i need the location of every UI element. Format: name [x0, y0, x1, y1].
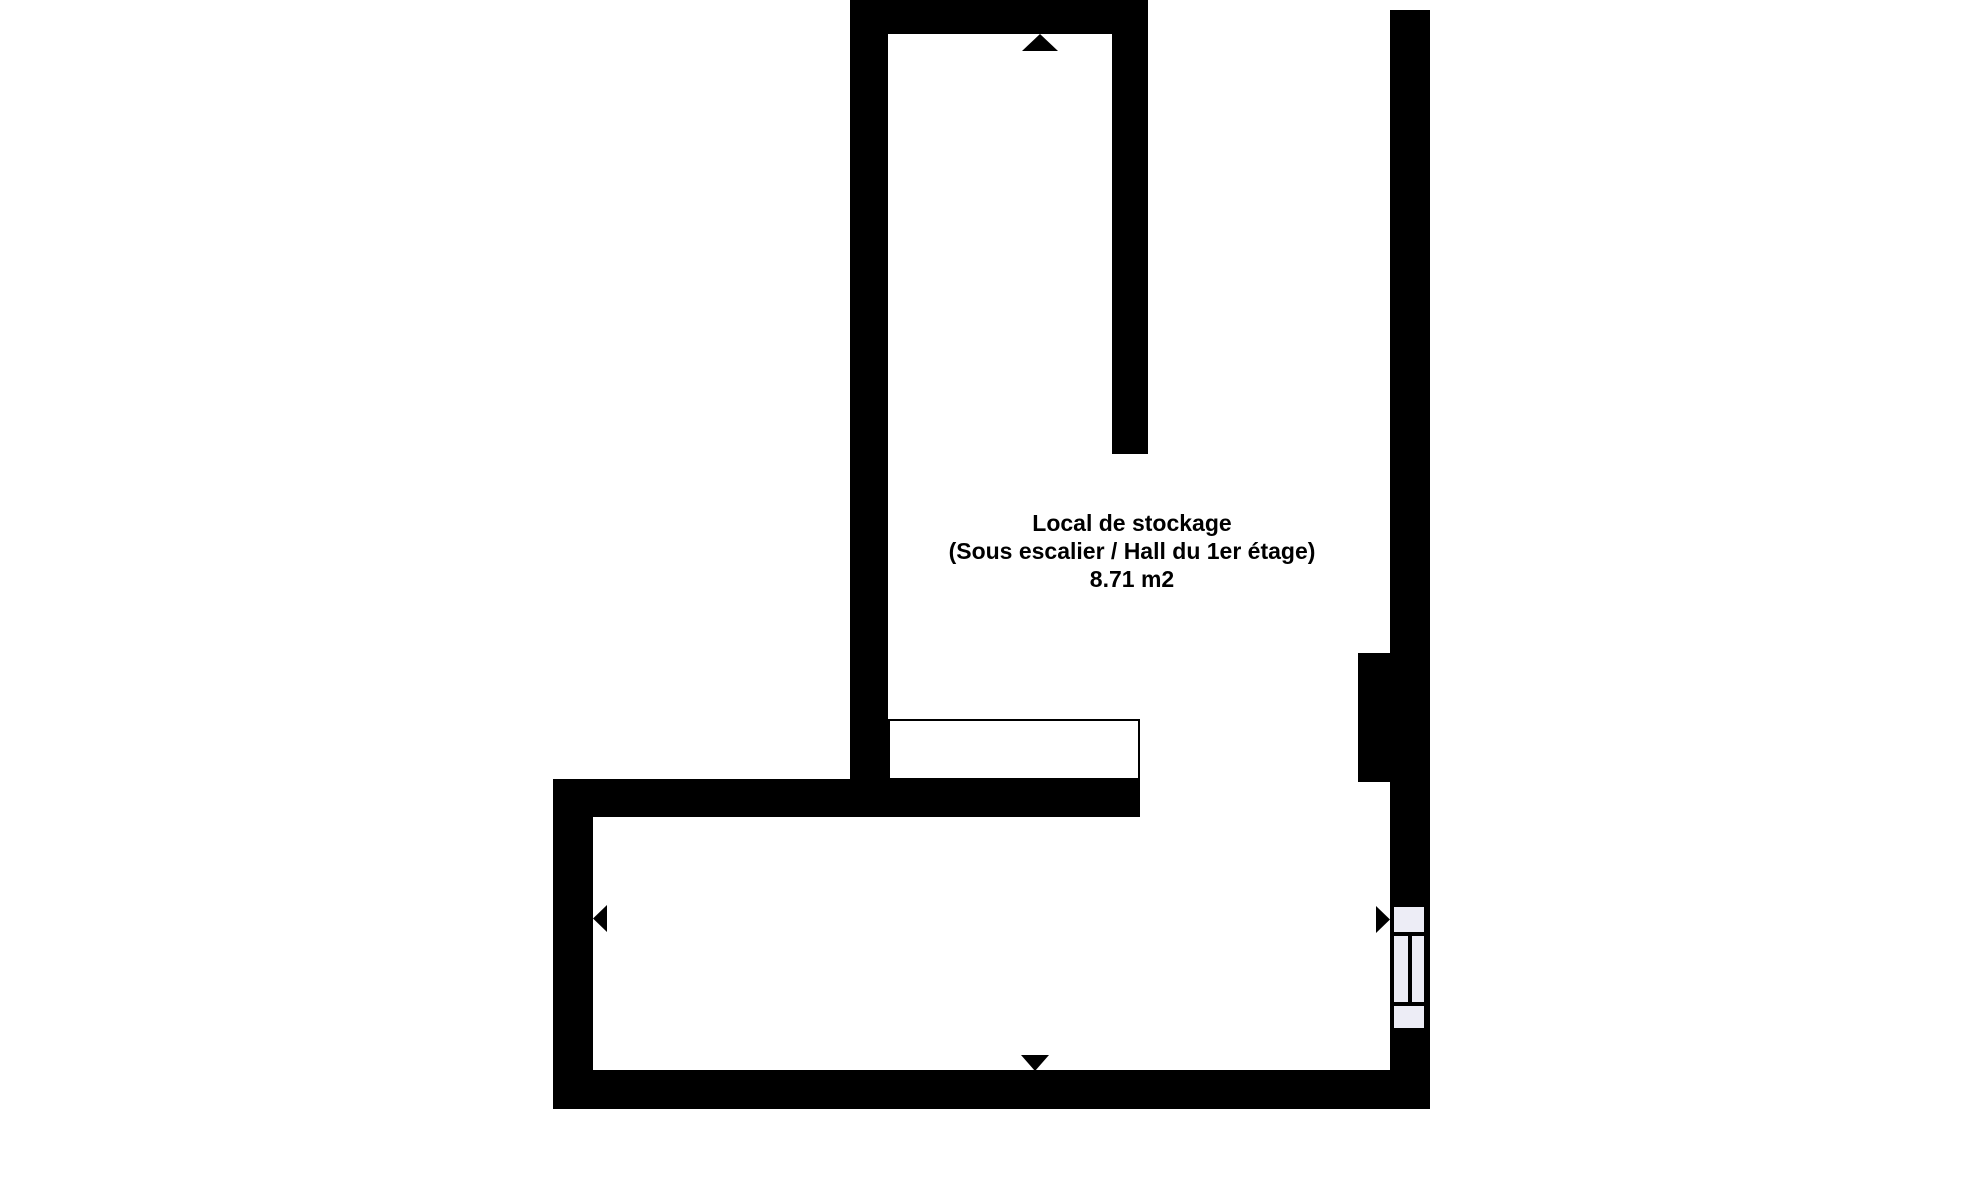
radiator-segment — [1394, 907, 1424, 932]
room-label: Local de stockage (Sous escalier / Hall … — [882, 509, 1382, 593]
wall-lower-room-left — [553, 779, 593, 1109]
wall-lower-room-bottom — [553, 1070, 1430, 1109]
floorplan-canvas: Local de stockage (Sous escalier / Hall … — [0, 0, 1984, 1200]
room-name: Local de stockage — [882, 509, 1382, 537]
radiator-segment — [1412, 936, 1424, 1002]
door-marker-down-icon — [1021, 1055, 1049, 1071]
door-marker-up-icon — [1022, 34, 1058, 51]
wall-upper-corridor-top — [850, 0, 1148, 34]
wall-lower-room-top — [553, 779, 1140, 817]
room-location: (Sous escalier / Hall du 1er étage) — [882, 537, 1382, 565]
door-marker-right-icon — [1376, 906, 1390, 933]
wall-upper-corridor-left — [850, 0, 888, 817]
wall-door-jamb — [1358, 653, 1390, 782]
door-marker-left-icon — [593, 905, 607, 932]
radiator-segment — [1394, 936, 1408, 1002]
niche-outline — [888, 719, 1140, 780]
room-area: 8.71 m2 — [882, 565, 1382, 593]
radiator-segment — [1394, 1006, 1424, 1028]
wall-upper-corridor-right — [1112, 0, 1148, 454]
